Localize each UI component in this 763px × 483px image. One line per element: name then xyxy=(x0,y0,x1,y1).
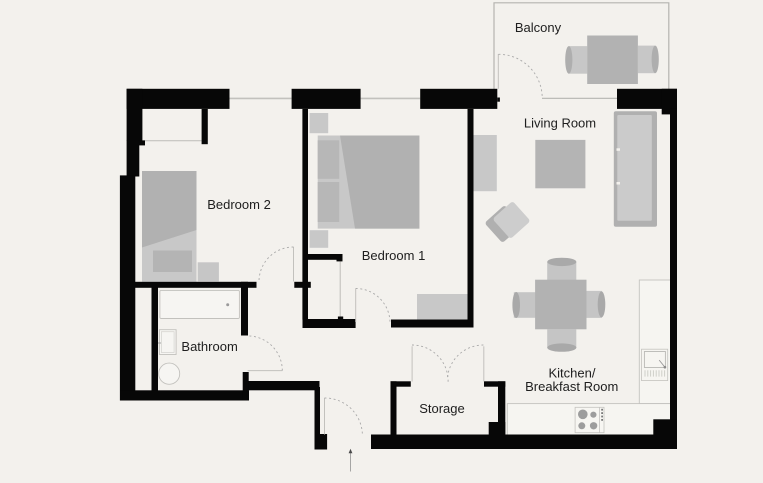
svg-text:Bedroom 1: Bedroom 1 xyxy=(362,248,426,263)
svg-text:Storage: Storage xyxy=(419,401,465,416)
svg-text:Living Room: Living Room xyxy=(524,115,596,130)
svg-text:Balcony: Balcony xyxy=(515,20,562,35)
svg-text:Bathroom: Bathroom xyxy=(181,339,237,354)
svg-text:Bedroom 2: Bedroom 2 xyxy=(207,197,271,212)
svg-text:Breakfast Room: Breakfast Room xyxy=(525,379,618,394)
